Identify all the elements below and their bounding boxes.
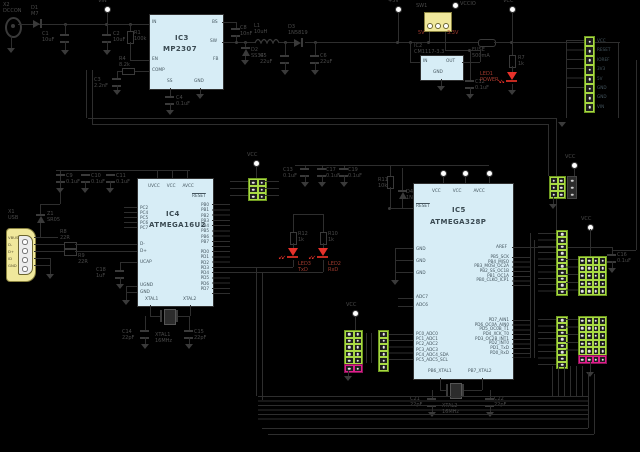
- ground-symbol: [466, 94, 474, 99]
- wire-segment: [390, 165, 391, 176]
- wire-bundle: [538, 319, 556, 369]
- ic3-pin-gnd: GND: [194, 80, 204, 84]
- wire-segment: [410, 62, 420, 63]
- wire-segment: [390, 187, 391, 208]
- cap-c3-label: C3 2.2nF: [94, 78, 108, 89]
- wire-segment: [170, 88, 171, 96]
- wire-segment: [107, 41, 108, 50]
- wire-segment: [293, 260, 294, 267]
- vcc5-label: VCC: [565, 155, 575, 161]
- wire-segment: [295, 165, 489, 166]
- crystal-q1: [164, 309, 176, 325]
- wire-segment: [256, 166, 257, 178]
- res-r8-label: R8 22R: [60, 230, 70, 241]
- cap-c9-label: C9 0.1uF: [66, 174, 80, 185]
- wire-segment: [293, 214, 294, 232]
- ic5-name: IC5: [452, 206, 466, 214]
- ic3-part: MP2307: [163, 45, 197, 53]
- ground-symbol: [56, 188, 64, 193]
- wire-bundle: [265, 181, 279, 198]
- diode-z1: [36, 214, 45, 223]
- wire-segment: [390, 208, 413, 209]
- wire-segment: [172, 170, 173, 178]
- ic3-pin-in: IN: [152, 21, 156, 25]
- ic3-pin-en: EN: [152, 58, 158, 62]
- wire-segment: [305, 42, 478, 43]
- ic5-pin-reset: RESET: [416, 205, 430, 209]
- wire-segment: [398, 306, 413, 307]
- wire-bundle: [566, 40, 584, 88]
- wire-bundle: [538, 233, 556, 295]
- ground-symbol: [106, 188, 114, 193]
- icsp2-header: [549, 176, 566, 199]
- wire-segment: [464, 390, 482, 391]
- ground-symbol: [103, 50, 111, 55]
- wire-segment: [120, 262, 137, 263]
- wire-segment: [145, 337, 146, 344]
- ic5-pin-aref: AREF: [496, 246, 507, 250]
- wire-segment: [366, 333, 367, 363]
- ic3-pin-sw: SW: [210, 40, 217, 44]
- wire-segment: [189, 337, 190, 344]
- wire-segment: [262, 272, 263, 400]
- ic5-pb-pins: PB5_SCKPB4_MISOPB3_MOSI_OC2APB2_SS_OC1BP…: [429, 255, 509, 283]
- res-r7-label: R7 1k: [518, 56, 525, 67]
- cap-c10-label: C10 0.1uF: [91, 174, 105, 185]
- ic5-pin-xtal1: PB6_XTAL1: [428, 370, 452, 374]
- wire-segment: [443, 176, 444, 183]
- wire-bundle: [124, 207, 137, 231]
- power-header: [584, 36, 595, 113]
- wire-segment: [75, 244, 137, 245]
- res-r11-label: R11 10k: [378, 178, 388, 189]
- usb-pin-labels: VBUSD-D+IDGND: [8, 234, 18, 269]
- analog-grid-magenta-row: [344, 364, 363, 373]
- ic4-pin-xtal1: XTAL1: [145, 298, 158, 302]
- wire-segment: [268, 434, 594, 435]
- wire-segment: [107, 24, 108, 34]
- ic5-part: ATMEGA328P: [430, 218, 486, 226]
- crystal-plate: [176, 310, 178, 322]
- ic5-gnd-pins: GNDGNDGND: [416, 243, 426, 279]
- cap-c5-label: C5 22uF: [260, 54, 272, 65]
- wire-segment: [398, 298, 413, 299]
- wire-segment: [470, 87, 471, 94]
- ic5-pin-xtal2: PB7_XTAL2: [468, 370, 492, 374]
- wire-segment: [120, 277, 121, 284]
- led3-txd: ↙↙: [287, 248, 298, 258]
- wire-bundle: [512, 320, 530, 358]
- usb-x1-label: X1 USB: [8, 210, 18, 221]
- ic2-label: IC2 CM1117-3.3: [414, 44, 444, 55]
- sw1-5v-label: 5V: [418, 31, 425, 37]
- ic4-pin-ugnd: UGND: [140, 284, 153, 288]
- wire-segment: [42, 244, 64, 245]
- ground-symbol: [549, 204, 557, 209]
- wire-segment: [110, 181, 111, 188]
- wire-segment: [588, 372, 589, 428]
- vccio-terminal: [452, 2, 459, 9]
- inductor-l1: [254, 36, 280, 44]
- vcc-label: VCC: [503, 0, 513, 5]
- ground-symbol: [7, 48, 15, 53]
- inductor-l1-label: L1 10uH: [254, 24, 267, 35]
- wire-segment: [222, 22, 236, 23]
- wire-segment: [371, 333, 372, 363]
- wire-segment: [445, 50, 480, 51]
- ic4-pin-dminus: D-: [140, 243, 145, 247]
- wire-segment: [86, 70, 87, 118]
- wire-segment: [50, 258, 51, 274]
- cap-c11-label: C11 0.1uF: [116, 174, 130, 185]
- led1-label: LED1 POWER: [480, 72, 499, 83]
- res-r12-label: R12 1k: [298, 232, 308, 243]
- wire-segment: [440, 378, 441, 390]
- crystal-plate: [462, 384, 464, 396]
- wire-segment: [150, 305, 151, 316]
- wire-segment: [594, 374, 595, 434]
- analog-grid-header: [344, 330, 363, 365]
- ground-symbol: [196, 94, 204, 99]
- sw1-pin: [435, 23, 441, 29]
- wire-segment: [445, 30, 446, 50]
- ic3-pin-comp: COMP: [152, 69, 165, 73]
- sw1-label: SW1: [416, 4, 427, 10]
- wire-segment: [126, 286, 127, 300]
- wire-segment: [126, 286, 137, 287]
- cap-c6-label: C6 22uF: [320, 54, 332, 65]
- wire-segment: [482, 378, 483, 390]
- wire-bundle: [212, 204, 230, 247]
- cap-c17-label: C17 0.1uF: [326, 168, 340, 179]
- ground-symbol: [344, 376, 352, 381]
- analog-pin-header: [378, 330, 389, 372]
- ground-symbol: [81, 188, 89, 193]
- crystal-q1-label: XTAL1 16MHz: [155, 333, 172, 344]
- bus-rail: [88, 118, 556, 119]
- dc-jack-label: X2 DCCON: [3, 3, 22, 14]
- ic2-pin-in: IN: [423, 60, 427, 64]
- res-r1-label: R1 100k: [134, 31, 146, 42]
- res-r9-label: R9 22R: [78, 254, 88, 265]
- ground-symbol: [311, 70, 319, 75]
- wire-segment: [441, 79, 442, 86]
- cap-c16-label: C16 0.1uF: [617, 253, 631, 264]
- wire-segment: [402, 199, 403, 208]
- aux-header: [567, 176, 577, 199]
- wire-segment: [553, 197, 554, 204]
- wire-segment: [462, 62, 480, 63]
- wire-segment: [65, 41, 66, 50]
- wire-segment: [130, 24, 131, 31]
- ground-symbol: [122, 300, 130, 305]
- diode-d1-label: D1 M7: [31, 6, 39, 17]
- diode-d2: [241, 47, 250, 56]
- wire-segment: [315, 62, 316, 70]
- led2-rxd: ↙↙: [317, 248, 328, 258]
- cap-c19-label: C19 0.1uF: [348, 168, 362, 179]
- wire-segment: [117, 71, 118, 78]
- wire-segment: [612, 261, 613, 268]
- wire-segment: [65, 24, 66, 34]
- wire-segment: [470, 50, 471, 80]
- wire-segment: [40, 204, 41, 214]
- ic4-name: IC4: [166, 210, 180, 218]
- ic4-pin-reset: RESET: [192, 195, 206, 199]
- ic4-pin-xtal2: XTAL2: [183, 298, 196, 302]
- cap-c8-label: C8 10nF: [240, 26, 252, 37]
- wire-segment: [556, 118, 557, 230]
- wire-segment: [512, 42, 513, 55]
- wire-segment: [230, 267, 293, 268]
- wire-segment: [189, 316, 190, 330]
- vin-label: VIN: [98, 0, 107, 5]
- usb-connector-inner: [18, 235, 33, 275]
- wire-segment: [42, 237, 58, 238]
- wire-segment: [465, 176, 466, 183]
- ic4-top-pins: UVCCVCCAVCC: [148, 183, 194, 188]
- wire-bundle: [388, 334, 413, 365]
- ground-symbol: [166, 110, 174, 115]
- diode-d3: [294, 38, 303, 47]
- ic2-pin-out: OUT: [446, 60, 455, 64]
- plus5v-label: +5V: [388, 0, 399, 5]
- wire-segment: [262, 428, 588, 429]
- wire-segment: [40, 223, 41, 237]
- wire-segment: [134, 71, 149, 72]
- bus-bundle: [552, 366, 586, 396]
- wire-segment: [130, 60, 149, 61]
- wire-segment: [230, 272, 323, 273]
- ic3-pin-ss: SS: [167, 80, 172, 84]
- diode-d3-label: D3 1N5819: [288, 25, 308, 36]
- wire-segment: [548, 124, 549, 176]
- wire-segment: [512, 12, 513, 42]
- vcc3-label: VCC: [346, 303, 356, 309]
- wire-segment: [145, 316, 146, 330]
- sw1-pin: [427, 23, 433, 29]
- ground-symbol: [318, 182, 326, 187]
- sw1-pin: [443, 23, 449, 29]
- wire-segment: [323, 214, 324, 232]
- dc-jack-symbol: [5, 17, 22, 38]
- wire-segment: [590, 229, 591, 256]
- ic4-pin-dplus: D+: [140, 250, 147, 254]
- power-header-labels: VCCRESETIOREF3V35VGNDGNDVIN: [597, 36, 610, 111]
- wire-segment: [323, 260, 324, 272]
- ic4-pc-pins: PC2PC4PC5PC6PC7: [140, 205, 148, 230]
- cap-c15-label: C15 22pF: [194, 330, 206, 341]
- ic5-pd-pins: PD7_AIN1PD6_OC0A_AIN0PD5_OC0B_T1PD4_XCK_…: [429, 318, 509, 356]
- vccio-label: VCCIO: [460, 2, 476, 8]
- ground-symbol: [558, 122, 566, 127]
- wire-bundle: [395, 248, 413, 274]
- res-r4-label: R4 8.2k: [119, 57, 130, 68]
- wire-segment: [190, 305, 191, 316]
- wire-segment: [285, 42, 286, 55]
- wire-segment: [92, 70, 93, 124]
- wire-segment: [305, 175, 306, 182]
- ic3-pin-fb: FB: [213, 58, 218, 62]
- wire-segment: [120, 262, 121, 270]
- wire-bundle: [212, 251, 230, 294]
- wire-segment: [42, 251, 64, 252]
- wire-segment: [222, 42, 255, 43]
- wire-segment: [187, 170, 188, 178]
- ground-symbol: [301, 182, 309, 187]
- wire-segment: [480, 50, 481, 62]
- cap-c18-label: C18 1uF: [96, 268, 106, 279]
- wire-segment: [130, 42, 131, 60]
- crystal-plate: [446, 384, 448, 396]
- ic5-top-pins: VCCVCCAVCC: [432, 188, 485, 193]
- wire-bundle: [230, 181, 248, 198]
- ground-symbol: [61, 50, 69, 55]
- ground-symbol: [437, 86, 445, 91]
- sw1-switch: [424, 12, 452, 32]
- wire-segment: [590, 362, 591, 372]
- bus-bundle: [258, 396, 588, 423]
- wire-segment: [402, 168, 403, 190]
- wire-segment: [56, 170, 190, 171]
- wire-segment: [566, 40, 567, 118]
- wire-segment: [344, 175, 345, 182]
- wire-segment: [612, 247, 613, 254]
- resistor-r4: [122, 68, 135, 75]
- junction-dot: [427, 41, 430, 44]
- fuse-symbol: [478, 39, 496, 47]
- wire-segment: [40, 204, 60, 205]
- ground-symbol: [391, 280, 399, 285]
- ground-symbol: [116, 284, 124, 289]
- crystal-plate: [160, 310, 162, 322]
- ground-symbol: [340, 182, 348, 187]
- ic3-pin-bs: BS: [212, 21, 218, 25]
- wire-segment: [322, 175, 323, 182]
- ground-symbol: [113, 90, 121, 95]
- res-r10-label: R10 1k: [328, 232, 338, 243]
- wire-segment: [42, 258, 50, 259]
- ground-symbol: [508, 90, 516, 95]
- led2-label: LED2 RxD: [328, 262, 341, 273]
- ic4-pin-gnd: GND: [140, 291, 150, 295]
- ic5-pin-adc6: ADC6: [416, 304, 428, 308]
- ground-symbol: [241, 60, 249, 65]
- led1-power: ↘↘: [506, 72, 517, 82]
- cap-c1-label: C1 10uF: [42, 32, 54, 43]
- digital-grid-upper: [578, 256, 607, 296]
- ground-symbol: [46, 274, 54, 279]
- wire-segment: [489, 176, 490, 183]
- wire-segment: [618, 42, 619, 118]
- vcc4-label: VCC: [581, 217, 591, 223]
- diode-z1-label: Z1 SR05: [47, 212, 60, 223]
- wire-bundle: [566, 319, 578, 353]
- ground-symbol: [608, 268, 616, 273]
- cap-c14-label: C14 22pF: [122, 330, 134, 341]
- wire-segment: [285, 62, 286, 70]
- cap-c13-label: C13 0.1uF: [283, 168, 297, 179]
- wire-segment: [315, 42, 316, 55]
- wire-segment: [574, 168, 575, 176]
- wire-segment: [398, 12, 399, 42]
- wire-segment: [395, 248, 396, 280]
- wire-bundle: [566, 259, 578, 293]
- diode-d1: [33, 19, 42, 28]
- wire-segment: [60, 181, 61, 188]
- wire-segment: [293, 214, 323, 215]
- digital-grid-magenta-row: [578, 355, 607, 364]
- ic4-pin-ucap: UCAP: [140, 261, 152, 265]
- wire-segment: [11, 36, 12, 48]
- ic2-pin-gnd: GND: [433, 71, 443, 75]
- wire-segment: [170, 103, 171, 110]
- vcc2-label: VCC: [247, 153, 257, 159]
- ic5-pin-adc7: ADC7: [416, 296, 428, 300]
- wire-segment: [410, 42, 411, 62]
- ic3-name: IC3: [175, 34, 189, 42]
- junction-dot: [235, 41, 238, 44]
- wire-segment: [636, 60, 637, 250]
- ic4-part: ATMEGA16U2: [149, 221, 206, 229]
- wire-segment: [42, 265, 50, 266]
- wire-segment: [157, 170, 158, 178]
- wire-bundle: [512, 257, 530, 287]
- ic4-pd-pins: PD0PD1PD2PD3PD4PD5PD6PD7: [189, 249, 209, 291]
- circuit-schematic: X2 DCCON D1 M7 C1 10uF VIN C2 10uF R1 10…: [0, 0, 640, 452]
- wire-segment: [75, 251, 137, 252]
- cap-c4-label: C4 0.1uF: [176, 96, 190, 107]
- wire-segment: [534, 240, 535, 358]
- wire-segment: [85, 181, 86, 188]
- wire-segment: [126, 292, 137, 293]
- ground-symbol: [185, 344, 193, 349]
- junction-dot: [396, 41, 399, 44]
- ground-symbol: [141, 344, 149, 349]
- cap-c2-label: C2 10uF: [113, 32, 125, 43]
- wire-segment: [530, 233, 531, 358]
- wire-segment: [355, 316, 356, 330]
- ground-symbol: [281, 70, 289, 75]
- digital-grid-lower: [578, 316, 607, 356]
- wire-bundle: [34, 237, 42, 267]
- sw1-3v3-label: 3.3V: [447, 31, 458, 37]
- bus-rail: [92, 124, 548, 125]
- wire-segment: [256, 268, 257, 396]
- wire-segment: [612, 250, 636, 251]
